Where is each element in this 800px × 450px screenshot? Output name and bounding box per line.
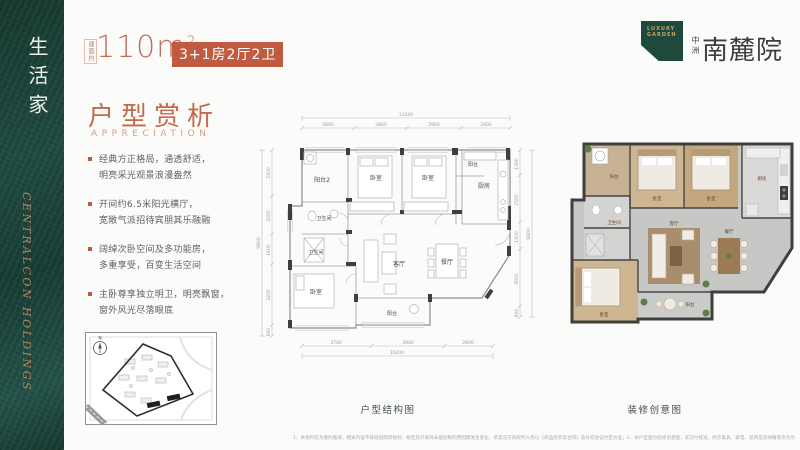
bullet-square-icon xyxy=(88,157,92,161)
dim-top: 2800 xyxy=(322,122,334,128)
room-label: 厨房 xyxy=(758,175,767,182)
dim-bottom: 3700 xyxy=(330,340,342,346)
dim-top-total: 11100 xyxy=(399,112,413,118)
dim-right: 2500 xyxy=(514,194,520,206)
room-label: 卧室 xyxy=(310,288,322,296)
room-label: 卧室 xyxy=(653,195,662,202)
bullet-square-icon xyxy=(88,247,92,251)
room-label: 厨房 xyxy=(478,182,490,190)
layout-badge: 3+1房2厅2卫 xyxy=(172,42,283,67)
room-label: 阳台2 xyxy=(314,176,330,184)
room-label: 阳台 xyxy=(468,161,478,168)
dim-right: 600 xyxy=(514,309,520,318)
section-subtitle: APPRECIATION xyxy=(91,129,210,139)
list-item: 开间约6.5米阳光横厅， 宽敞气派招待宾朋其乐融融 xyxy=(88,197,263,229)
room-label: 客厅 xyxy=(393,260,405,268)
room-label: 阳台 xyxy=(610,173,619,180)
structure-plan-caption: 户型结构图 xyxy=(328,402,448,416)
site-location-map: N xyxy=(85,332,217,425)
north-compass-icon xyxy=(94,342,107,355)
dim-right: 3000 xyxy=(514,273,520,285)
section-title: 户型赏析 xyxy=(88,96,220,133)
creative-plan-caption: 装修创意图 xyxy=(595,402,715,416)
dim-left: 1600 xyxy=(266,244,272,256)
logo-tagline-line2: GARDEN xyxy=(647,32,677,38)
bullet-square-icon xyxy=(88,202,92,206)
dim-top: 2900 xyxy=(428,122,440,128)
room-label: 卫生间 xyxy=(607,219,621,226)
logo-tagline: LUXURY GARDEN xyxy=(647,26,677,38)
bullet-line: 明亮采光观景浪漫盎然 xyxy=(99,168,263,184)
dim-left: 3200 xyxy=(266,289,272,301)
north-label: N xyxy=(98,336,101,342)
bullet-line: 宽敞气派招待宾朋其乐融融 xyxy=(99,213,263,229)
dim-bottom: 3900 xyxy=(402,340,414,346)
brand-name: 南麓院 xyxy=(702,30,783,67)
bullet-line: 开间约6.5米阳光横厅， xyxy=(99,197,263,213)
room-label: 卧室 xyxy=(600,311,609,318)
room-label: 餐厅 xyxy=(441,258,453,266)
dim-right-total: 8800 xyxy=(526,228,532,240)
page-root: 生活家 CENTRALCON HOLDINGS 建面约 110m2 3+1房2厅… xyxy=(0,0,800,450)
room-label: 卧室 xyxy=(707,195,716,202)
dim-top: 2600 xyxy=(480,122,492,128)
bullet-line: 经典方正格局，通透舒适， xyxy=(99,152,263,168)
dim-left: 2400 xyxy=(266,167,272,179)
bullet-line: 主卧尊享独立明卫，明亮飘窗， xyxy=(99,287,263,303)
dim-bottom-total: 10200 xyxy=(390,350,404,356)
room-label: 阳台 xyxy=(686,301,695,308)
sidebar-vertical-title: 生活家 xyxy=(23,36,52,123)
dim-top: 2800 xyxy=(375,122,387,128)
dim-left: 600 xyxy=(266,328,272,337)
room-label: 餐厅 xyxy=(725,228,734,235)
room-label: 客厅 xyxy=(670,220,679,227)
sidebar-texture-panel: 生活家 CENTRALCON HOLDINGS xyxy=(0,0,64,450)
dim-bottom: 2600 xyxy=(462,340,474,346)
dim-right: 1300 xyxy=(514,158,520,170)
bullet-line: 阔绰次卧空间及多功能房， xyxy=(99,242,263,258)
bullet-line: 多重享受，百变生活空间 xyxy=(99,258,263,274)
dim-right: 1400 xyxy=(514,231,520,243)
dim-left-total: 9800 xyxy=(256,237,262,249)
bullet-square-icon xyxy=(88,292,92,296)
list-item: 经典方正格局，通透舒适， 明亮采光观景浪漫盎然 xyxy=(88,152,263,184)
sidebar-brand-script: CENTRALCON HOLDINGS xyxy=(20,192,33,392)
room-label: 卫生间 xyxy=(316,215,331,222)
creative-floor-plan: 阳台 卧室 卧室 厨房 卫生间 卧室 客厅 餐厅 阳台 xyxy=(570,134,794,334)
room-label: 卧室 xyxy=(422,174,434,182)
brand-prefix: 中洲 xyxy=(690,36,701,56)
structure-floor-plan: 11100 2800 2800 2900 2600 9800 2400 2000… xyxy=(256,106,552,398)
dim-left: 2000 xyxy=(266,210,272,222)
brand-logo-icon: LUXURY GARDEN xyxy=(641,21,683,61)
disclaimer-text: 1、本资料仅为要约邀请，相关内容不排除因政府规划、规定及开发商未能控制的原因而发… xyxy=(293,435,795,441)
list-item: 主卧尊享独立明卫，明亮飘窗， 窗外风光尽落眼底 xyxy=(88,287,263,319)
selling-points-list: 经典方正格局，通透舒适， 明亮采光观景浪漫盎然 开间约6.5米阳光横厅， 宽敞气… xyxy=(88,152,263,332)
room-label: 卫生间 xyxy=(308,249,323,256)
room-label: 阳台 xyxy=(387,310,397,317)
bullet-line: 窗外风光尽落眼底 xyxy=(99,303,263,319)
list-item: 阔绰次卧空间及多功能房， 多重享受，百变生活空间 xyxy=(88,242,263,274)
room-label: 卧室 xyxy=(370,174,382,182)
